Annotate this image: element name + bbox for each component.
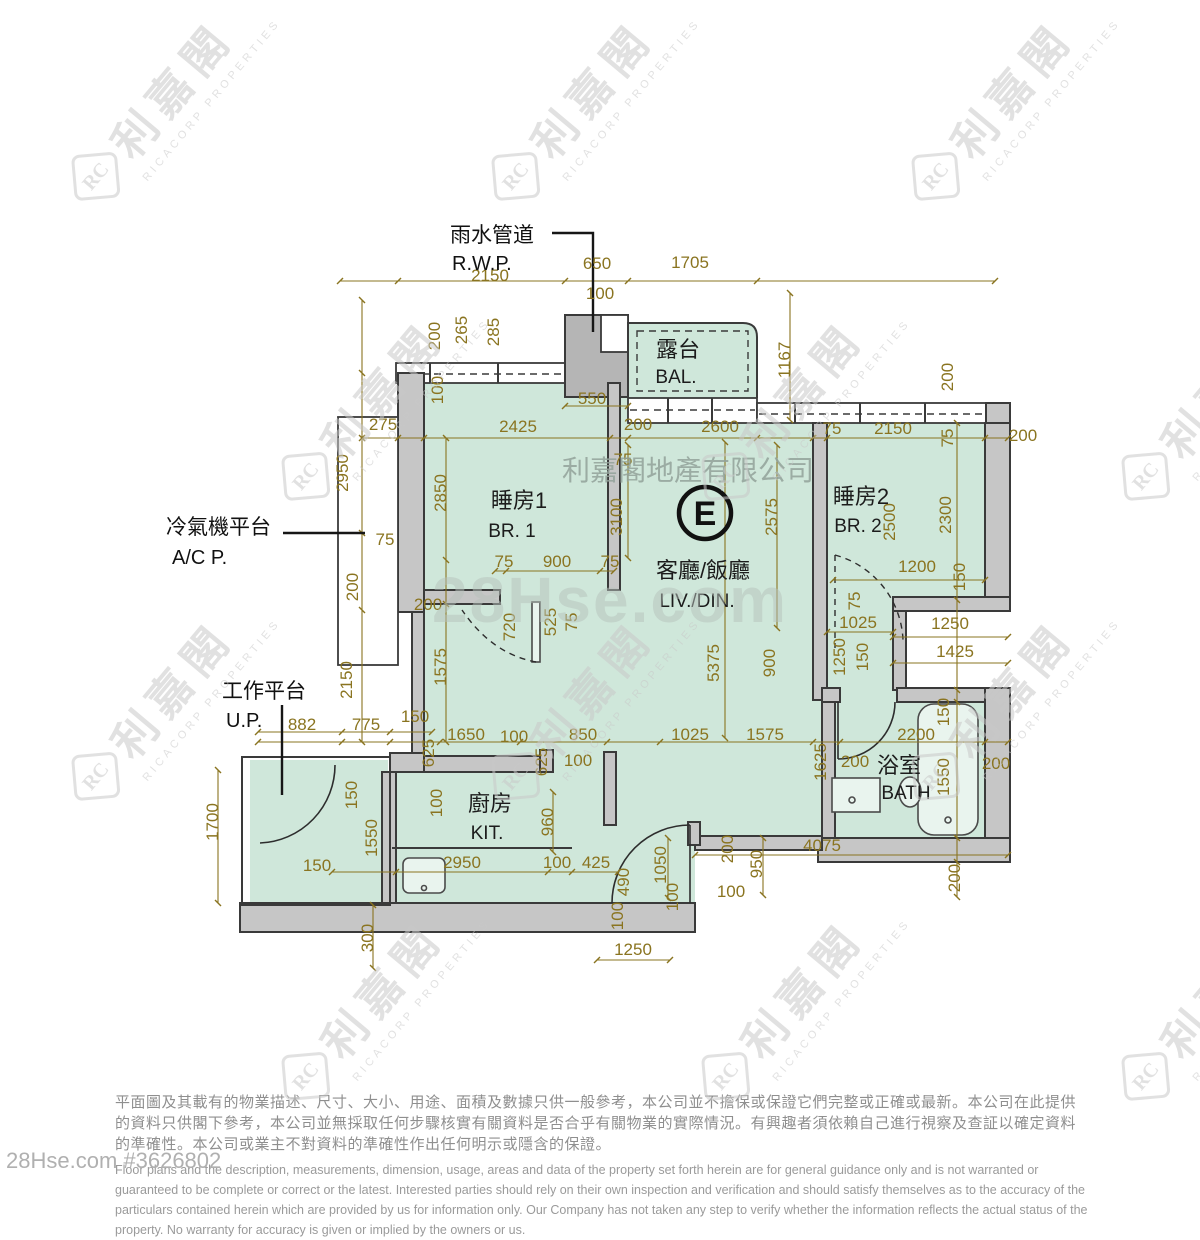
annotation-up-zh: 工作平台: [222, 680, 306, 703]
dimension-label: 2600: [701, 417, 739, 436]
dimension-label: 1550: [934, 758, 953, 796]
dimension-label: 1200: [898, 557, 936, 576]
room-label-br1-en: BR. 1: [488, 521, 536, 542]
dimension-label: 100: [586, 284, 614, 303]
dimension-label: 200: [945, 864, 964, 892]
dimension-label: 100: [717, 882, 745, 901]
dimension-label: 1650: [447, 725, 485, 744]
dimension-label: 882: [288, 715, 316, 734]
dimension-label: 2150: [874, 419, 912, 438]
dimension-label: 100: [500, 727, 528, 746]
annotation-acp-en: A/C P.: [172, 547, 227, 569]
dimension-label: 200: [938, 363, 957, 391]
dimension-label: 200: [1009, 426, 1037, 445]
dimension-label: 550: [578, 389, 606, 408]
kitchen-sink-tap: [422, 886, 427, 891]
unit-label-text: E: [694, 495, 717, 533]
dimension-label: 285: [484, 318, 503, 346]
dimension-label: 200: [841, 752, 869, 771]
annotation-rwp-en: R.W.P.: [452, 253, 512, 275]
dimension-label: 75: [845, 592, 864, 611]
dimension-label: 650: [583, 254, 611, 273]
room-label-br2-zh: 睡房2: [833, 484, 889, 509]
floorplan-canvas: 2150650170510026528520010055011672002002…: [0, 0, 1200, 1200]
bath-sink: [832, 778, 880, 812]
wall-left: [398, 373, 424, 612]
dimension-label: 2300: [936, 496, 955, 534]
room-label-br2-en: BR. 2: [834, 516, 882, 537]
dimension-label: 2150: [337, 661, 356, 699]
listing-reference: 28Hse.com #3626802: [6, 1148, 221, 1174]
dimension-label: 4075: [803, 836, 841, 855]
bath-sink-drain: [849, 797, 855, 803]
dimension-label: 1250: [931, 614, 969, 633]
dimension-label: 150: [342, 781, 361, 809]
dimension-label: 960: [538, 808, 557, 836]
dimension-label: 2575: [762, 498, 781, 536]
room-label-br1-zh: 睡房1: [491, 488, 547, 513]
dimension-label: 300: [358, 924, 377, 952]
wall-bath-bottom: [818, 838, 1010, 862]
room-label-balcony-en: BAL.: [655, 367, 696, 388]
footer-disclaimer: 平面圖及其載有的物業描述、尺寸、大小、用途、面積及數據只供一般參考，本公司並不擔…: [115, 1092, 1090, 1240]
dimension-label: 1425: [936, 642, 974, 661]
dimension-label: 3100: [607, 498, 626, 536]
dimension-label: 75: [376, 530, 395, 549]
dimension-label: 1575: [746, 725, 784, 744]
dimension-label: 850: [569, 725, 597, 744]
dimension-label: 775: [352, 715, 380, 734]
dimension-label: 100: [428, 376, 447, 404]
dimension-label: 2850: [431, 474, 450, 512]
dimension-label: 1025: [839, 613, 877, 632]
dimension-label: 1625: [811, 743, 830, 781]
dimension-label: 625: [532, 748, 551, 776]
dimension-label: 75: [938, 429, 957, 448]
dimension-label: 1250: [614, 940, 652, 959]
dimension-label: 1700: [203, 803, 222, 841]
rwp-slot: [601, 315, 628, 352]
dimension-label: 150: [401, 707, 429, 726]
dimension-label: 150: [950, 563, 969, 591]
dimension-label: 200: [982, 754, 1010, 773]
room-label-balcony-zh: 露台: [656, 337, 700, 362]
dimension-label: 200: [343, 573, 362, 601]
wall-br2-right: [985, 423, 1010, 608]
center-watermark-site: 28Hse.com: [432, 564, 788, 636]
room-label-bath-zh: 浴室: [877, 753, 921, 778]
wall-notch: [893, 611, 906, 690]
dimension-label: 1250: [830, 638, 849, 676]
dimension-label: 1167: [775, 342, 794, 379]
dimension-label: 100: [564, 751, 592, 770]
dimension-label: 1575: [431, 648, 450, 686]
dimension-label: 2950: [443, 853, 481, 872]
annotation-acp-zh: 冷氣機平台: [166, 516, 271, 539]
wall-bath-top-l: [822, 688, 840, 702]
dimension-label: 100: [427, 789, 446, 817]
annotation-up-en: U.P.: [226, 710, 262, 732]
corner-column: [986, 403, 1010, 425]
dimension-label: 1025: [671, 725, 709, 744]
disclaimer-chinese: 平面圖及其載有的物業描述、尺寸、大小、用途、面積及數據只供一般參考，本公司並不擔…: [115, 1092, 1090, 1155]
dimension-label: 625: [419, 739, 438, 767]
dimension-label: 200: [718, 835, 737, 863]
dimension-label: 200: [624, 415, 652, 434]
center-watermark-company: 利嘉閣地產有限公司: [562, 455, 814, 486]
room-label-bath-en: BATH: [881, 783, 930, 804]
dimension-label: 490: [614, 868, 633, 896]
dimension-label: 150: [303, 856, 331, 875]
dimension-label: 200: [425, 322, 444, 350]
dimension-label: 75: [823, 419, 842, 438]
dimension-label: 5375: [704, 644, 723, 682]
dimension-label: 2950: [333, 454, 352, 492]
dimension-label: 1050: [651, 846, 670, 884]
dimension-label: 1705: [671, 253, 709, 272]
dimension-label: 425: [582, 853, 610, 872]
dimension-label: 265: [452, 316, 471, 344]
dimension-label: 1550: [362, 819, 381, 857]
dimension-label: 275: [369, 415, 397, 434]
bathtub-drain: [945, 817, 951, 823]
dimension-label: 150: [853, 643, 872, 671]
dimension-label: 100: [663, 883, 682, 911]
dimension-label: 2200: [897, 725, 935, 744]
disclaimer-english: Floor plans and the description, measure…: [115, 1160, 1090, 1240]
dimension-label: 100: [543, 853, 571, 872]
dimension-label: 900: [760, 649, 779, 677]
dimension-label: 100: [608, 902, 627, 930]
dimension-label: 150: [934, 698, 953, 726]
room-label-kitchen-en: KIT.: [471, 823, 504, 844]
wall-liv-br2: [813, 423, 827, 700]
dimension-label: 2425: [499, 417, 537, 436]
annotation-rwp-zh: 雨水管道: [450, 224, 534, 247]
wall-kitchen-liv: [604, 752, 616, 825]
room-label-kitchen-zh: 廚房: [468, 791, 512, 816]
dimension-label: 950: [747, 850, 766, 878]
wall-br2-bottom: [893, 597, 1010, 611]
